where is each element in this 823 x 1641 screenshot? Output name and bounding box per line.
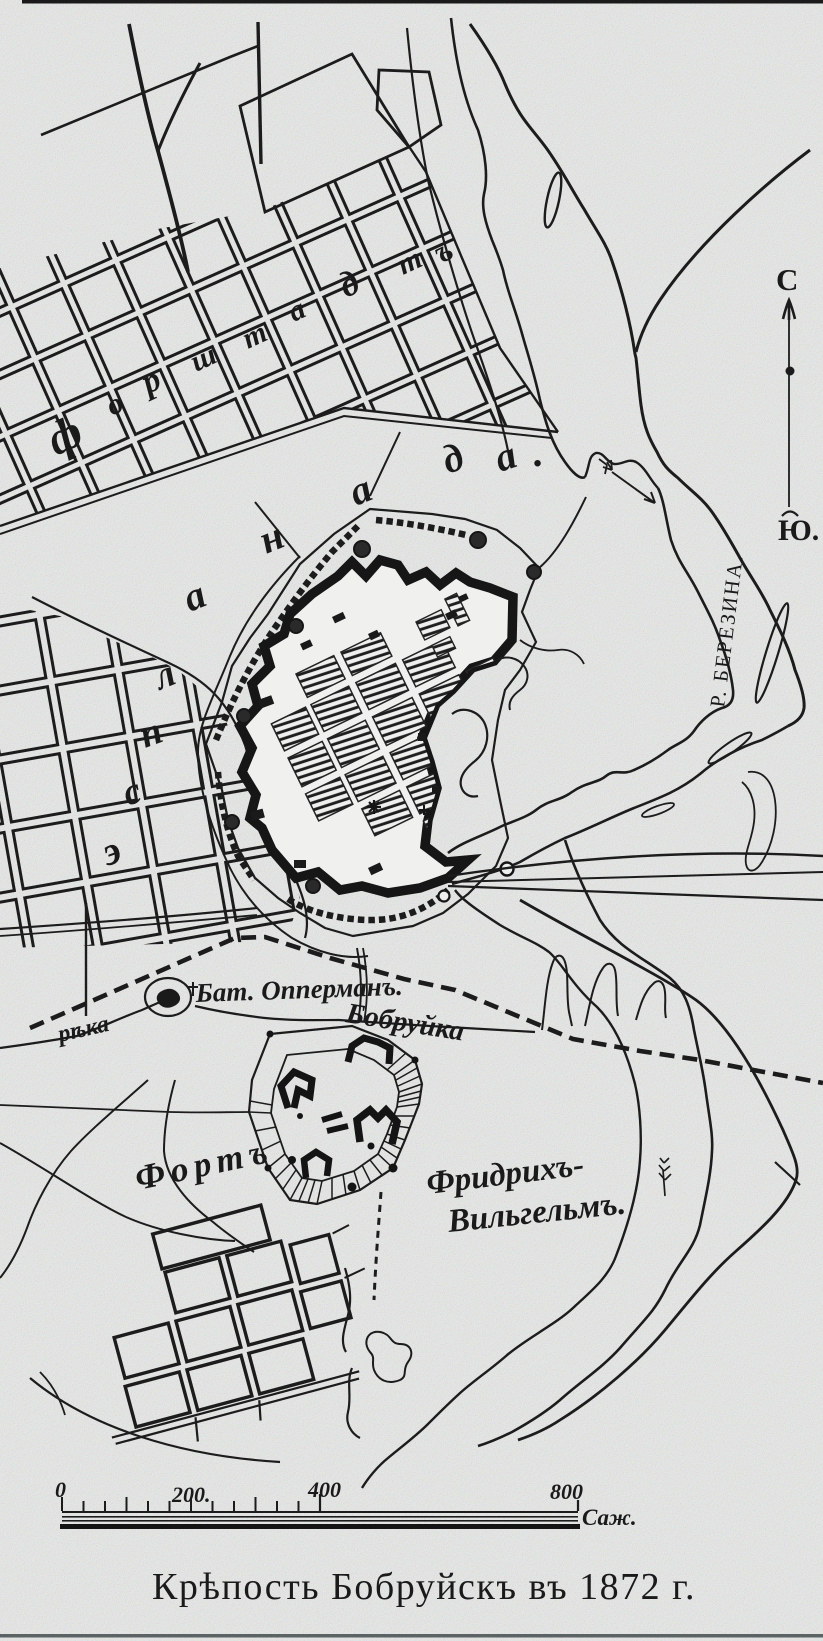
svg-text:Ю.: Ю. bbox=[778, 514, 819, 547]
svg-text:0: 0 bbox=[55, 1477, 66, 1502]
svg-text:Саж.: Саж. bbox=[582, 1505, 637, 1530]
svg-text:200.: 200. bbox=[171, 1482, 211, 1507]
svg-text:800: 800 bbox=[550, 1479, 583, 1504]
svg-text:С: С bbox=[776, 262, 798, 297]
svg-text:.: . bbox=[534, 430, 544, 475]
svg-text:400: 400 bbox=[307, 1477, 341, 1502]
svg-text:Крѣпость Бобруйскъ въ 1872: Крѣпость Бобруйскъ въ 1872 г. bbox=[152, 1566, 696, 1608]
